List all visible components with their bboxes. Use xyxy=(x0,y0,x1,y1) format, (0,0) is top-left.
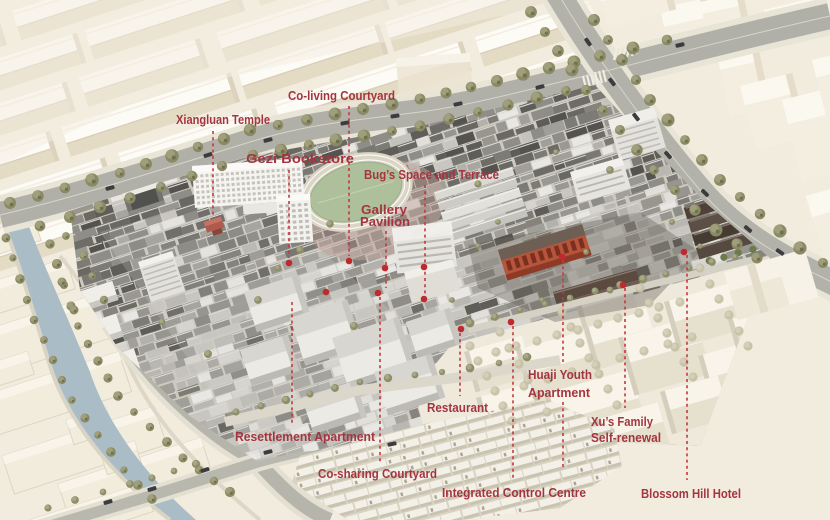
svg-text:Gezi Bookstore: Gezi Bookstore xyxy=(246,152,354,166)
svg-text:Integrated Control Centre: Integrated Control Centre xyxy=(442,486,586,500)
svg-text:Restaurant: Restaurant xyxy=(427,401,489,415)
svg-text:Co-living Courtyard: Co-living Courtyard xyxy=(288,89,395,103)
svg-text:Xiangluan Temple: Xiangluan Temple xyxy=(176,113,270,127)
svg-text:Bug’s Space and Terrace: Bug’s Space and Terrace xyxy=(364,168,499,182)
svg-text:Co-sharing Courtyard: Co-sharing Courtyard xyxy=(318,467,437,481)
svg-text:Resettlement Apartment: Resettlement Apartment xyxy=(235,430,376,444)
svg-text:GalleryPavilion: GalleryPavilion xyxy=(360,203,410,229)
svg-text:Blossom Hill Hotel: Blossom Hill Hotel xyxy=(641,487,741,501)
